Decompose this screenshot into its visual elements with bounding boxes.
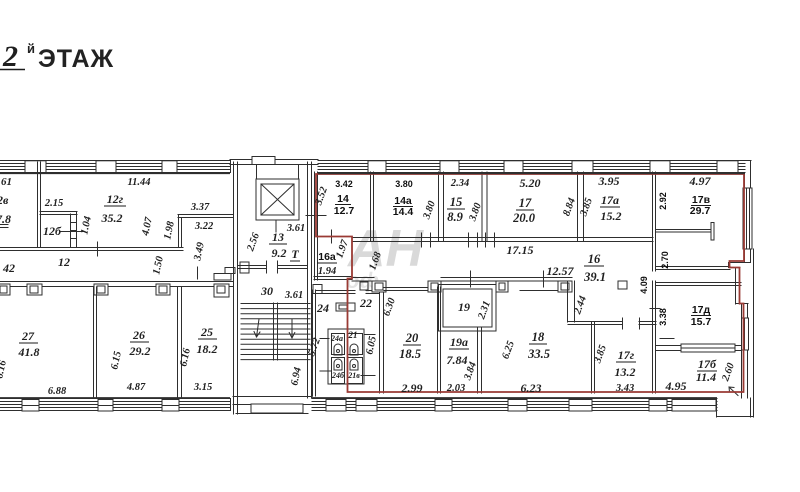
svg-text:13: 13 bbox=[272, 230, 284, 244]
svg-text:Т: Т bbox=[291, 247, 299, 261]
svg-text:6.25: 6.25 bbox=[500, 340, 517, 361]
svg-text:1.94: 1.94 bbox=[318, 266, 336, 277]
svg-text:3.85: 3.85 bbox=[578, 197, 595, 219]
svg-text:2.15: 2.15 bbox=[44, 198, 63, 209]
svg-text:8.9: 8.9 bbox=[447, 210, 463, 224]
svg-text:1.50: 1.50 bbox=[151, 255, 166, 276]
svg-text:2.31: 2.31 bbox=[476, 300, 493, 322]
svg-text:15: 15 bbox=[450, 195, 463, 209]
svg-text:12.57: 12.57 bbox=[547, 264, 575, 278]
svg-text:3.22: 3.22 bbox=[194, 221, 214, 232]
svg-text:2.03: 2.03 bbox=[446, 383, 465, 394]
svg-text:17: 17 bbox=[519, 196, 532, 210]
svg-text:16а: 16а bbox=[318, 251, 336, 263]
svg-text:17.15: 17.15 bbox=[507, 243, 534, 257]
svg-text:24б: 24б bbox=[331, 371, 345, 380]
svg-text:9.2: 9.2 bbox=[272, 246, 287, 260]
svg-text:2.92: 2.92 bbox=[658, 192, 668, 210]
svg-text:18.2: 18.2 bbox=[197, 342, 218, 356]
svg-text:61: 61 bbox=[1, 176, 12, 188]
svg-text:14.4: 14.4 bbox=[393, 206, 414, 218]
svg-text:4.87: 4.87 bbox=[126, 382, 146, 393]
svg-text:21: 21 bbox=[348, 330, 358, 340]
svg-text:17б: 17б bbox=[698, 357, 717, 371]
svg-text:26: 26 bbox=[132, 328, 145, 342]
svg-text:22: 22 bbox=[359, 296, 372, 310]
svg-text:17д: 17д bbox=[692, 304, 711, 316]
svg-text:4.97: 4.97 bbox=[689, 174, 712, 188]
svg-text:3.95: 3.95 bbox=[598, 174, 620, 188]
svg-text:11.44: 11.44 bbox=[127, 177, 150, 188]
svg-text:6.16: 6.16 bbox=[0, 359, 9, 380]
svg-text:24: 24 bbox=[316, 301, 329, 315]
svg-text:1.98: 1.98 bbox=[162, 220, 177, 241]
svg-text:3.42: 3.42 bbox=[335, 179, 353, 189]
svg-text:13.2: 13.2 bbox=[615, 365, 636, 379]
svg-text:12г: 12г bbox=[107, 192, 124, 206]
svg-text:8.84: 8.84 bbox=[561, 197, 578, 218]
svg-text:35.2: 35.2 bbox=[101, 211, 123, 225]
svg-text:6.23: 6.23 bbox=[521, 381, 542, 395]
svg-text:ЭТАЖ: ЭТАЖ bbox=[38, 45, 114, 73]
svg-text:3.37: 3.37 bbox=[190, 202, 210, 213]
svg-text:12б: 12б bbox=[43, 224, 62, 238]
svg-text:3.15: 3.15 bbox=[193, 382, 212, 393]
svg-text:2.34: 2.34 bbox=[450, 178, 469, 189]
svg-text:19: 19 bbox=[458, 300, 470, 314]
svg-text:25: 25 bbox=[200, 325, 213, 339]
svg-text:18.5: 18.5 bbox=[399, 347, 421, 361]
svg-text:18: 18 bbox=[532, 330, 545, 344]
svg-text:12.7: 12.7 bbox=[334, 205, 355, 217]
svg-text:3.80: 3.80 bbox=[395, 179, 413, 189]
svg-text:17г: 17г bbox=[618, 348, 635, 362]
svg-text:4.95: 4.95 bbox=[665, 379, 687, 393]
svg-text:6.88: 6.88 bbox=[48, 386, 67, 397]
svg-text:7.84: 7.84 bbox=[447, 353, 468, 367]
svg-text:39.1: 39.1 bbox=[583, 270, 606, 284]
svg-text:12: 12 bbox=[58, 255, 70, 269]
svg-text:6.94: 6.94 bbox=[289, 366, 304, 386]
svg-text:30: 30 bbox=[260, 284, 273, 298]
svg-text:3.38: 3.38 bbox=[658, 308, 668, 326]
svg-text:6.05: 6.05 bbox=[364, 335, 379, 355]
svg-text:15.2: 15.2 bbox=[601, 209, 622, 223]
svg-text:17а: 17а bbox=[601, 193, 619, 207]
svg-text:2.56: 2.56 bbox=[245, 231, 262, 254]
svg-text:2.70: 2.70 bbox=[660, 251, 670, 269]
svg-text:20: 20 bbox=[405, 331, 419, 345]
svg-text:6.15: 6.15 bbox=[109, 350, 124, 370]
svg-text:29.2: 29.2 bbox=[129, 344, 151, 358]
svg-text:29.7: 29.7 bbox=[690, 205, 711, 217]
svg-text:4.09: 4.09 bbox=[639, 276, 649, 294]
svg-text:2.60: 2.60 bbox=[720, 361, 737, 384]
svg-text:3.61: 3.61 bbox=[286, 223, 305, 234]
svg-text:12в: 12в bbox=[0, 193, 9, 207]
svg-text:15.7: 15.7 bbox=[691, 316, 712, 328]
svg-text:4.07: 4.07 bbox=[140, 216, 155, 238]
svg-text:14: 14 bbox=[337, 193, 349, 205]
svg-text:42: 42 bbox=[2, 261, 15, 275]
svg-text:19а: 19а bbox=[450, 335, 468, 349]
svg-text:3.43: 3.43 bbox=[615, 383, 634, 394]
svg-text:1.04: 1.04 bbox=[79, 215, 94, 235]
svg-text:5.20: 5.20 bbox=[520, 176, 541, 190]
svg-text:3.61: 3.61 bbox=[284, 290, 303, 301]
svg-text:16: 16 bbox=[588, 252, 601, 266]
svg-text:6.16: 6.16 bbox=[178, 347, 193, 368]
svg-text:2.99: 2.99 bbox=[401, 381, 423, 395]
svg-text:й: й bbox=[27, 41, 35, 56]
svg-text:21в: 21в bbox=[347, 371, 360, 380]
svg-text:11.4: 11.4 bbox=[696, 370, 716, 384]
svg-text:3.49: 3.49 bbox=[192, 241, 207, 263]
svg-text:24а: 24а bbox=[330, 334, 343, 343]
svg-text:41.8: 41.8 bbox=[18, 345, 40, 359]
svg-text:33.5: 33.5 bbox=[527, 347, 550, 361]
svg-text:17.8: 17.8 bbox=[0, 212, 11, 226]
svg-text:2: 2 bbox=[2, 40, 18, 73]
svg-text:20.0: 20.0 bbox=[512, 211, 536, 225]
svg-text:3.80: 3.80 bbox=[421, 199, 438, 222]
svg-text:27: 27 bbox=[21, 329, 35, 343]
